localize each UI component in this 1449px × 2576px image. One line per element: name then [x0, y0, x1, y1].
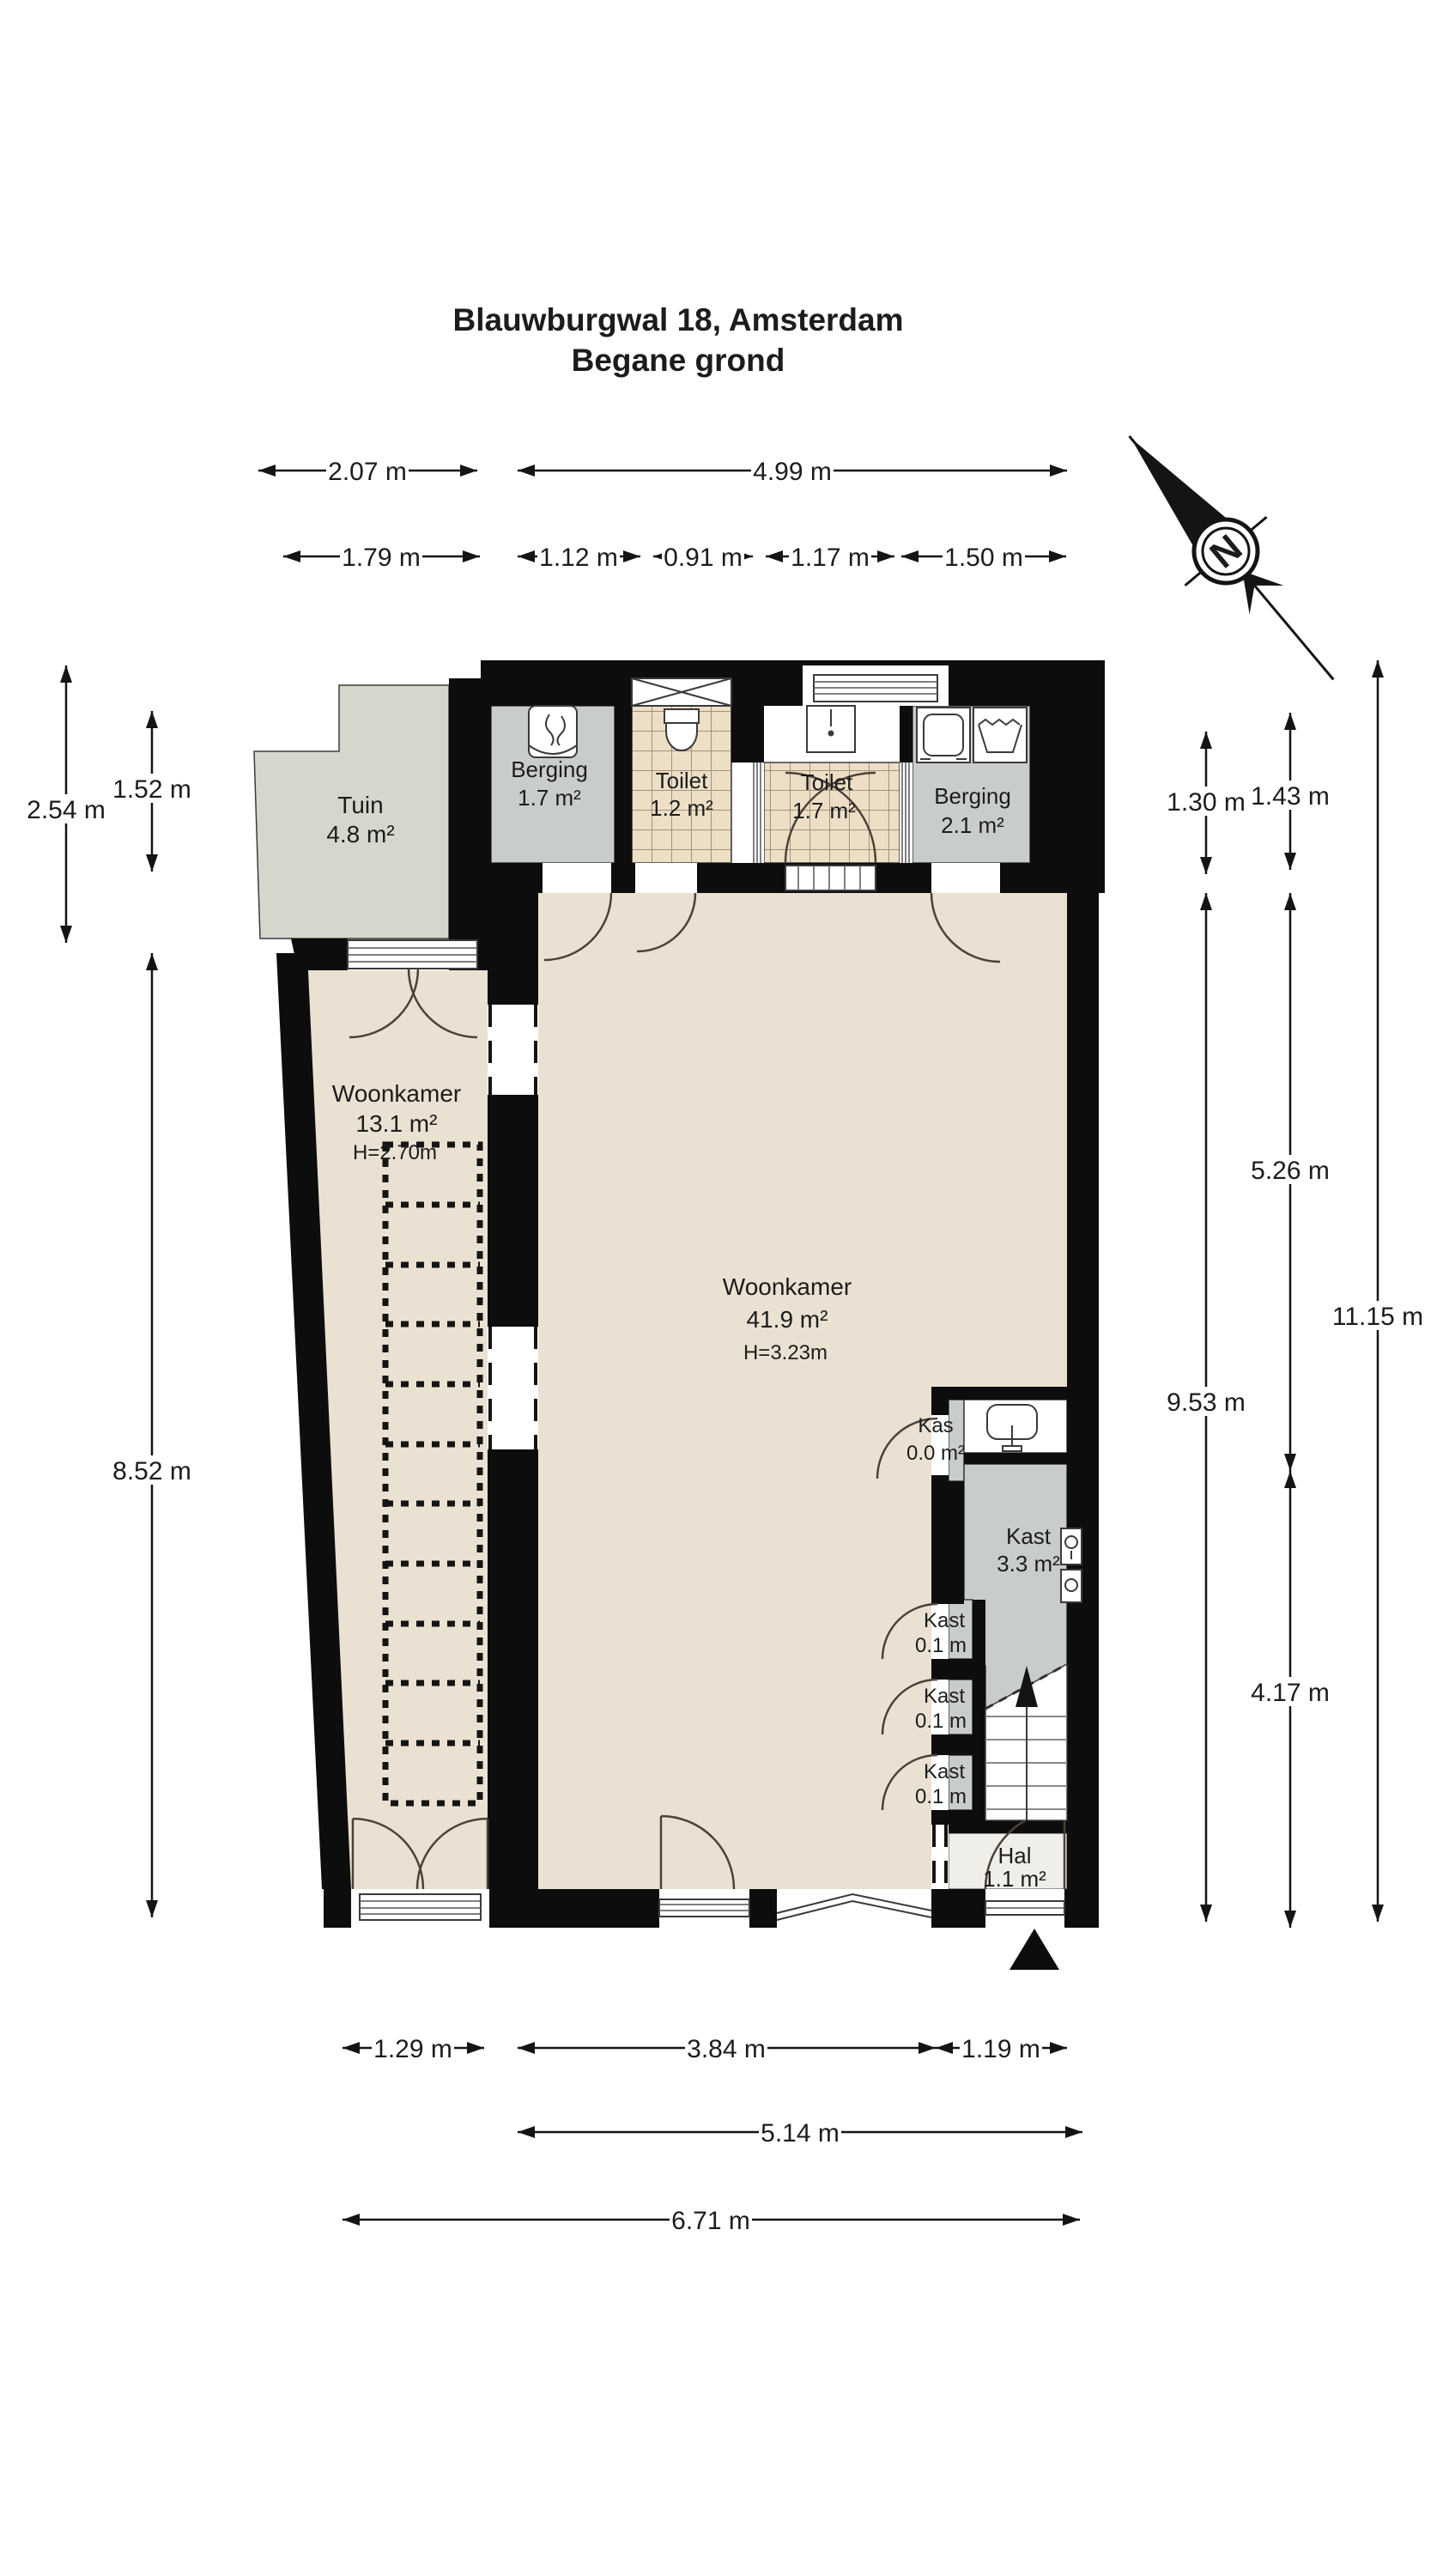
svg-text:3.84 m: 3.84 m [687, 2035, 766, 2063]
label-kast-3-area: 0.1 m [915, 1785, 967, 1808]
svg-text:8.52 m: 8.52 m [112, 1457, 191, 1485]
svg-text:5.14 m: 5.14 m [761, 2119, 840, 2148]
dimension-bottom-midden-totaal: 5.14 m [518, 2117, 1082, 2148]
svg-text:1.29 m: 1.29 m [373, 2035, 452, 2063]
top-window [803, 665, 949, 706]
label-woonkamer: Woonkamer [723, 1273, 852, 1300]
dimension-left-tuin2: 1.52 m [111, 711, 193, 872]
dimension-right-totaal: 11.15 m [1329, 660, 1427, 1922]
room-kas [949, 1400, 964, 1481]
toilet-icon [664, 709, 699, 750]
svg-text:4.17 m: 4.17 m [1251, 1679, 1330, 1707]
dimension-top-berging-r: 1.50 m [901, 542, 1066, 572]
svg-text:1.17 m: 1.17 m [791, 544, 870, 572]
dimension-top-tuin: 2.07 m [258, 456, 477, 486]
page-subtitle: Begane grond [572, 343, 785, 378]
dimension-right-boven: 5.26 m [1249, 893, 1331, 1471]
dimension-bottom-links: 1.29 m [343, 2033, 484, 2063]
label-kast-3: Kast [924, 1760, 965, 1783]
dimension-top-toilet-r: 1.17 m [766, 542, 894, 572]
label-woonkamer-smal-area: 13.1 m² [356, 1110, 438, 1137]
svg-text:2.54 m: 2.54 m [27, 796, 106, 824]
label-hal: Hal [997, 1843, 1031, 1868]
page-title: Blauwburgwal 18, Amsterdam [453, 302, 904, 337]
washing-machine-icon [917, 708, 970, 762]
svg-text:0.91 m: 0.91 m [664, 544, 743, 572]
window [659, 1899, 749, 1917]
svg-text:4.99 m: 4.99 m [753, 458, 832, 486]
meter-box-icon [1061, 1528, 1082, 1602]
label-woonkamer-smal: Woonkamer [332, 1080, 461, 1107]
floorplan-page: Blauwburgwal 18, Amsterdam Begane grond [0, 0, 1449, 2576]
dimension-top-berging-l: 1.12 m [518, 542, 640, 572]
label-berging-rechts: Berging [934, 783, 1011, 809]
svg-text:1.52 m: 1.52 m [112, 775, 191, 804]
svg-text:1.50 m: 1.50 m [944, 544, 1023, 572]
entrance-arrow-icon [1009, 1929, 1059, 1970]
svg-text:1.79 m: 1.79 m [342, 544, 421, 572]
label-berging-rechts-area: 2.1 m² [941, 812, 1004, 838]
svg-text:1.12 m: 1.12 m [539, 544, 618, 572]
dimension-left-woonkamer-smal: 8.52 m [111, 953, 193, 1917]
label-kast-2-area: 0.1 m [915, 1710, 967, 1733]
label-toilet-rechts: Toilet [801, 769, 853, 795]
label-kast-1: Kast [924, 1609, 965, 1632]
water-heater-icon [529, 706, 577, 757]
label-kast-groot-area: 3.3 m² [997, 1551, 1060, 1577]
laundry-sink-icon [973, 708, 1027, 762]
dimension-top-main: 4.99 m [518, 456, 1067, 486]
label-tuin-area: 4.8 m² [326, 821, 394, 848]
floor-plan: Blauwburgwal 18, Amsterdam Begane grond [0, 0, 1449, 2576]
label-woonkamer-smal-height: H=2.70m [353, 1141, 437, 1164]
sink-icon [807, 706, 855, 752]
label-toilet-links-area: 1.2 m² [650, 795, 713, 821]
svg-text:9.53 m: 9.53 m [1167, 1388, 1246, 1417]
label-woonkamer-height: H=3.23m [743, 1341, 828, 1364]
dimension-top-toilet-l: 0.91 m [653, 542, 753, 572]
svg-text:11.15 m: 11.15 m [1332, 1303, 1423, 1331]
svg-text:2.07 m: 2.07 m [328, 458, 407, 486]
label-toilet-links: Toilet [656, 768, 708, 793]
d imension-right-woonkamer: 9.53 m [1165, 893, 1247, 1922]
label-kas: Kas [918, 1414, 953, 1437]
svg-text:1.43 m: 1.43 m [1251, 782, 1330, 811]
label-hal-area: 1.1 m² [983, 1866, 1046, 1892]
label-kast-groot: Kast [1006, 1523, 1052, 1549]
label-kast-1-area: 0.1 m [915, 1634, 967, 1657]
dimension-bottom-hal: 1.19 m [936, 2033, 1067, 2063]
label-toilet-rechts-area: 1.7 m² [792, 798, 856, 823]
label-kast-2: Kast [924, 1685, 965, 1708]
dimension-left-tuin: 2.54 m [25, 665, 107, 943]
svg-text:1.19 m: 1.19 m [961, 2035, 1040, 2063]
window [360, 1894, 481, 1920]
label-berging-links: Berging [511, 756, 588, 782]
dimension-right-toilet: 1.43 m [1249, 713, 1331, 870]
dimension-right-berging: 1.30 m [1165, 732, 1247, 874]
shaft-icon [632, 678, 731, 706]
svg-text:1.30 m: 1.30 m [1167, 788, 1246, 817]
label-kas-area: 0.0 m² [906, 1442, 965, 1465]
dimension-top-tuin2: 1.79 m [283, 542, 480, 572]
svg-text:5.26 m: 5.26 m [1251, 1157, 1330, 1185]
compass-rose: N [1088, 402, 1374, 714]
dimension-bottom-midden: 3.84 m [518, 2033, 936, 2063]
dimension-right-onder: 4.17 m [1249, 1471, 1331, 1928]
label-woonkamer-area: 41.9 m² [747, 1306, 828, 1333]
svg-text:6.71 m: 6.71 m [671, 2207, 750, 2235]
dimension-bottom-totaal: 6.71 m [343, 2205, 1080, 2235]
label-tuin: Tuin [337, 792, 383, 818]
label-berging-links-area: 1.7 m² [518, 785, 581, 811]
